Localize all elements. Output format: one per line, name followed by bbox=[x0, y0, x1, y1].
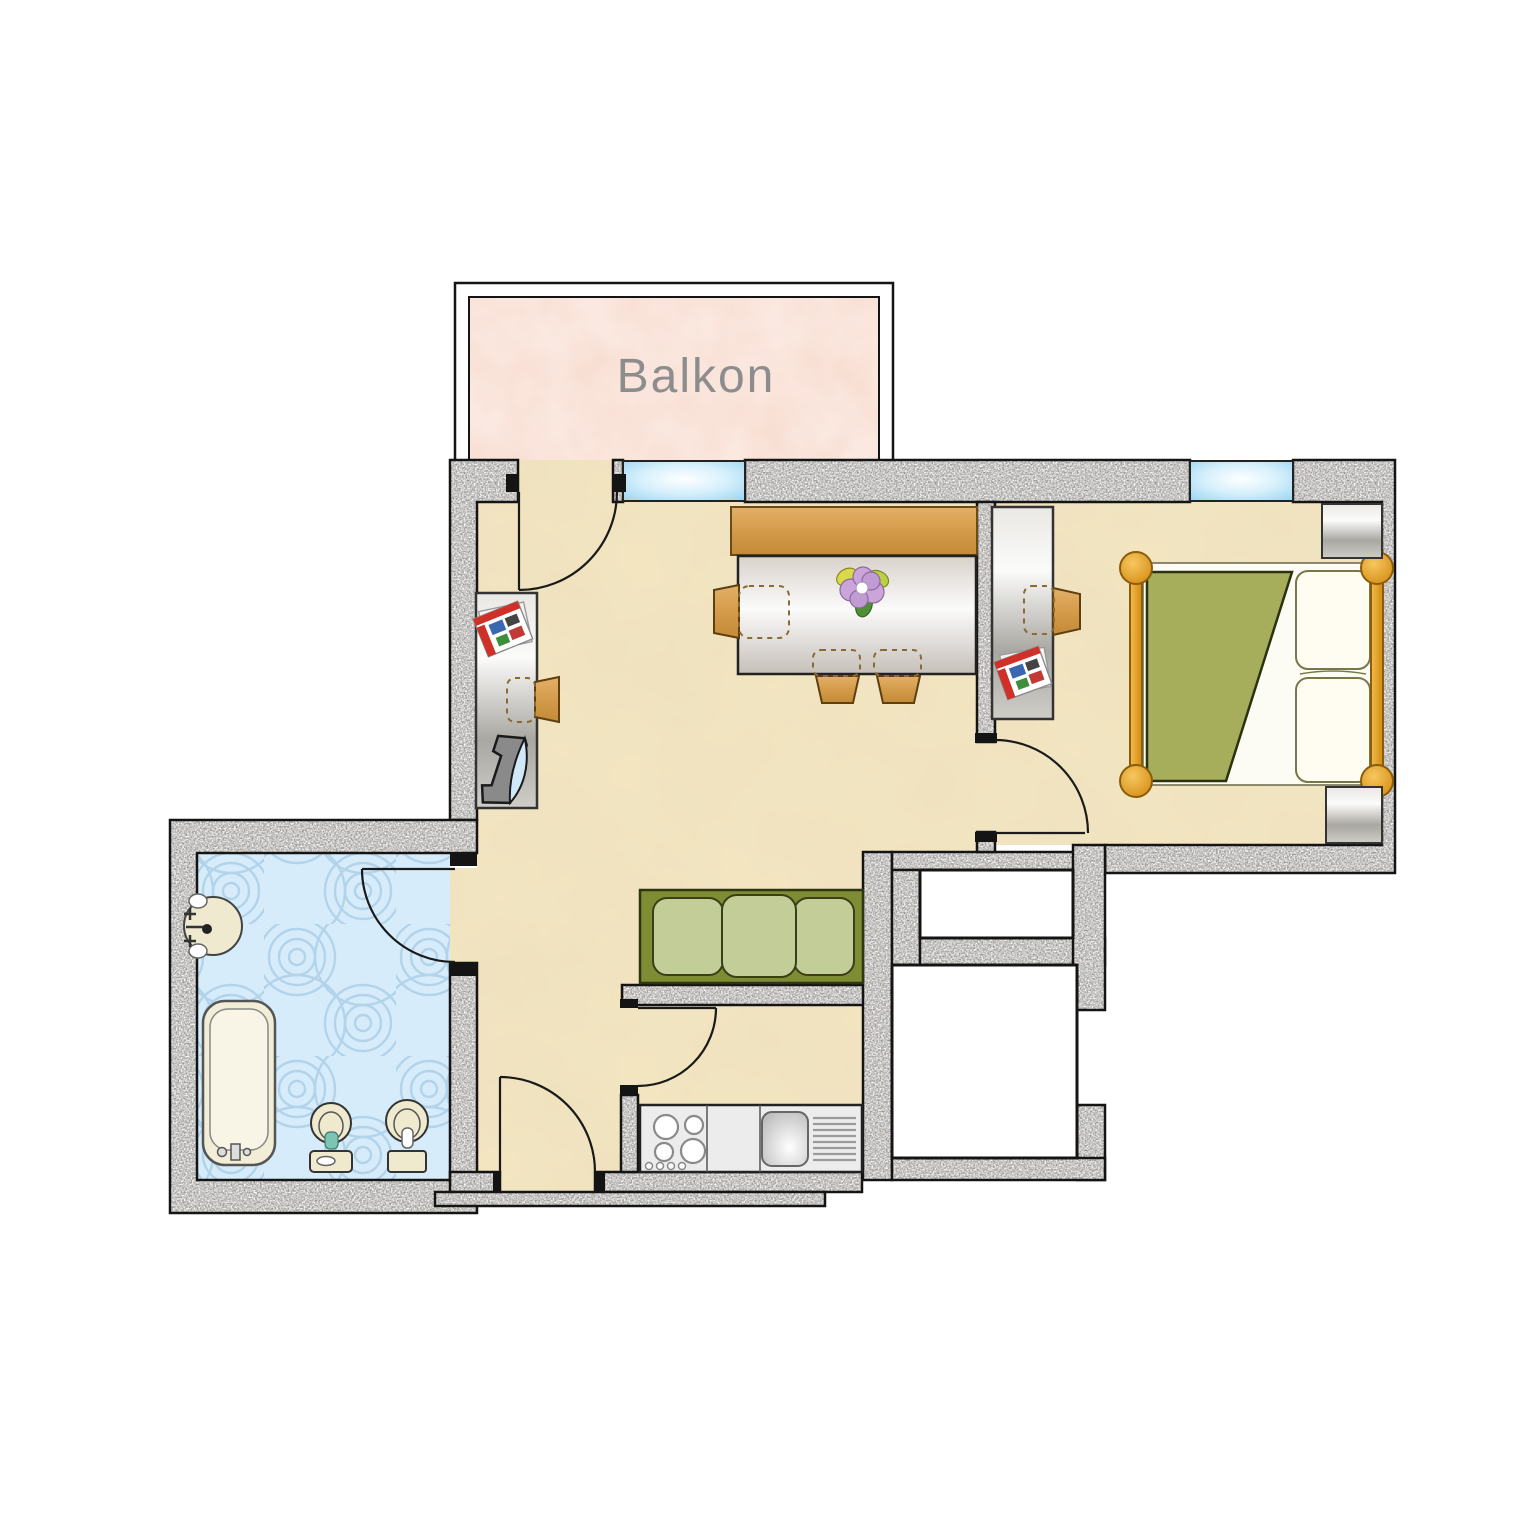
sideboard bbox=[731, 507, 977, 555]
bathtub-inner bbox=[210, 1009, 268, 1150]
bed-head-rail bbox=[1371, 568, 1383, 781]
dining-chair-left bbox=[714, 585, 739, 638]
shaft-lower bbox=[892, 965, 1077, 1158]
bedroom-doorway-floor bbox=[977, 742, 995, 833]
bed-knob bbox=[1120, 552, 1152, 584]
bidet bbox=[386, 1100, 428, 1172]
jamb-entry-right bbox=[595, 1172, 605, 1192]
shaft-upper bbox=[920, 870, 1073, 938]
balcony-doorway-floor bbox=[518, 460, 613, 502]
sofa-cushion-left bbox=[653, 898, 723, 975]
dining-area bbox=[714, 507, 977, 703]
bidet-pedestal bbox=[388, 1151, 426, 1172]
wall-kitchen-bottom bbox=[595, 1172, 862, 1192]
wall-bathroom-right bbox=[450, 963, 477, 1180]
bedroom-desk-chair bbox=[1053, 588, 1080, 635]
dining-chair-bottom-1 bbox=[816, 676, 859, 703]
kitchen-counter bbox=[640, 1105, 862, 1172]
jamb-balcony-right bbox=[614, 474, 626, 492]
kitchen-doorway-floor bbox=[620, 1007, 638, 1085]
jamb-balcony-left bbox=[506, 474, 518, 492]
wall-kitchen-stub bbox=[621, 1095, 638, 1172]
entry-corridor-floor bbox=[477, 985, 622, 1172]
sofa bbox=[640, 890, 863, 983]
balcony: Balkon bbox=[455, 283, 893, 463]
bedroom-window bbox=[1190, 461, 1293, 501]
kitchenette bbox=[640, 1105, 862, 1172]
entry-doorway-floor bbox=[500, 1172, 595, 1192]
jamb-entry-left bbox=[493, 1172, 501, 1192]
wall-bottom-step bbox=[435, 1192, 825, 1206]
bathroom-doorway-floor bbox=[450, 868, 477, 963]
kitchen-sink-basin bbox=[762, 1112, 808, 1166]
jamb-bath-bottom bbox=[450, 963, 477, 976]
toilet bbox=[310, 1103, 352, 1172]
double-bed bbox=[1120, 552, 1393, 797]
desk-chair-living bbox=[535, 677, 559, 722]
floor-plan-page: Balkon bbox=[0, 0, 1538, 1538]
dining-chair-bottom-2 bbox=[877, 676, 920, 703]
nightstand-top bbox=[1322, 504, 1382, 558]
living-room-window bbox=[623, 461, 745, 501]
wall-shaft1-left bbox=[892, 870, 920, 965]
sofa-cushion-middle bbox=[722, 895, 796, 977]
balcony-label: Balkon bbox=[617, 350, 776, 403]
bathtub bbox=[203, 1001, 275, 1165]
jamb-bath-top bbox=[450, 853, 477, 866]
bed-pillow-bottom bbox=[1296, 678, 1370, 782]
nightstand-bottom bbox=[1326, 787, 1382, 843]
bed-pillow-top bbox=[1296, 571, 1370, 669]
bed-foot-rail bbox=[1130, 568, 1142, 781]
jamb-bedroom-bottom bbox=[975, 832, 997, 842]
floor-plan: Balkon bbox=[0, 0, 1538, 1538]
kitchen-floor bbox=[638, 1005, 863, 1105]
bed-knob bbox=[1120, 765, 1152, 797]
jamb-kitchen-bottom bbox=[620, 1085, 638, 1094]
sofa-cushion-right bbox=[794, 898, 854, 975]
wall-shaft2-bottom bbox=[892, 1158, 1105, 1180]
wall-entry-left bbox=[450, 1172, 500, 1192]
wall-sofa bbox=[622, 985, 892, 1005]
jamb-kitchen-top bbox=[620, 999, 638, 1008]
jamb-bedroom-top bbox=[975, 733, 997, 743]
wall-kitchen-right bbox=[863, 852, 892, 1180]
wall-top-center bbox=[745, 460, 1190, 502]
